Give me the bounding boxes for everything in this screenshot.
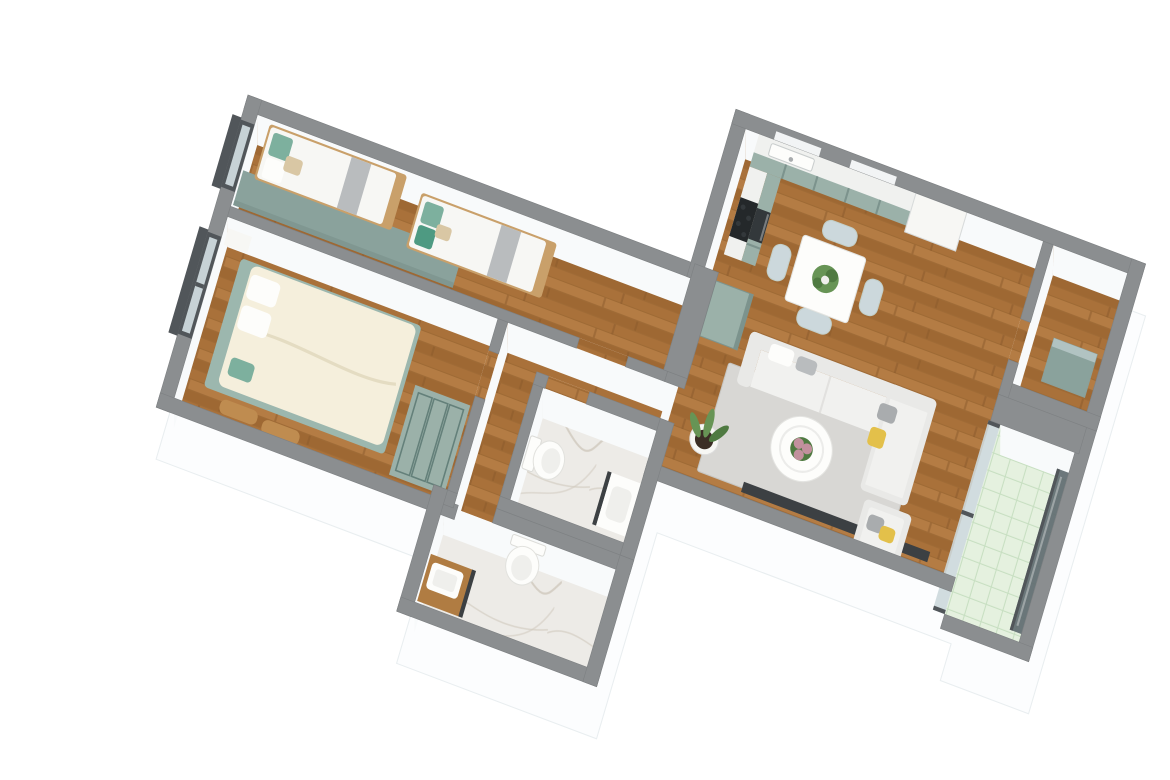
floor-plan-stage xyxy=(0,0,1170,780)
floor-plan-svg xyxy=(0,0,1170,780)
apartment-scene xyxy=(104,0,1160,780)
